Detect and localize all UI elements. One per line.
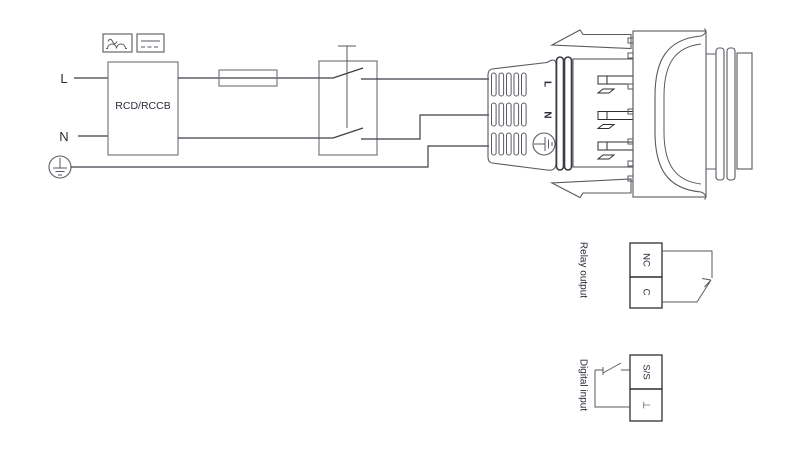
arrow-left-top-icon xyxy=(552,30,631,49)
earth-wire xyxy=(71,146,489,167)
fuse xyxy=(178,70,319,138)
terminal-nc-label: NC xyxy=(641,253,652,267)
pump-wiring-diagram: L N RCD/RCCB xyxy=(0,0,800,465)
mains-supply: L N xyxy=(49,71,489,178)
slot xyxy=(492,103,497,126)
rcd-rccb-block: RCD/RCCB xyxy=(103,34,178,155)
terminal-ss-label: S/S xyxy=(641,364,652,379)
pin-bar xyxy=(598,76,633,84)
slot xyxy=(507,133,512,155)
pump-receptacle xyxy=(628,29,752,200)
slot xyxy=(514,103,519,126)
live-label: L xyxy=(60,71,67,86)
switch-box xyxy=(319,61,377,155)
plug-neutral-label: N xyxy=(542,111,553,118)
pulsating-current-humps xyxy=(106,44,127,49)
wiring-diagram-canvas: L N RCD/RCCB xyxy=(0,0,800,465)
slot xyxy=(492,73,497,96)
smooth-dc-icon xyxy=(137,34,164,52)
slot xyxy=(492,133,497,155)
neck-lines xyxy=(706,54,716,169)
slot xyxy=(514,73,519,96)
neutral-wire-to-plug xyxy=(377,115,489,139)
protective-earth-icon xyxy=(49,156,71,178)
pin-earth xyxy=(598,142,633,159)
plug-earth-glyph xyxy=(534,137,552,151)
collar-ring-1 xyxy=(557,57,564,170)
slot xyxy=(522,103,527,126)
earth-glyph xyxy=(53,158,67,175)
wires-to-plug xyxy=(377,79,489,139)
slot xyxy=(499,73,504,96)
neutral-label: N xyxy=(59,129,68,144)
switch-contact-neutral xyxy=(319,128,377,139)
retaining-clip xyxy=(655,36,701,192)
plug-earth-icon xyxy=(533,133,555,155)
retaining-clip-detail xyxy=(664,29,706,200)
pin-latch xyxy=(598,155,614,159)
connector-housing xyxy=(573,59,633,167)
relay-contact-arm xyxy=(662,279,711,303)
slot xyxy=(514,133,519,155)
pulsating-current-icon xyxy=(103,34,132,52)
receptacle-block xyxy=(633,31,706,197)
pin-latch xyxy=(598,125,614,129)
slot xyxy=(522,133,527,155)
slot xyxy=(507,103,512,126)
collar-ring-2 xyxy=(565,57,572,170)
slot xyxy=(522,73,527,96)
slot xyxy=(499,133,504,155)
switch-contact-live xyxy=(319,68,377,79)
plug-live-label: L xyxy=(542,81,553,87)
digital-input-title: Digital input xyxy=(578,359,589,411)
end-cap xyxy=(737,53,752,169)
slot xyxy=(507,73,512,96)
power-plug: L N xyxy=(488,57,572,170)
ring-1 xyxy=(716,48,724,180)
terminal-c-label: C xyxy=(641,289,652,296)
digital-input-block: Digital input S/S ⊥ xyxy=(578,355,663,421)
plug-connector-body xyxy=(573,59,633,167)
terminal-ground-label: ⊥ xyxy=(641,401,652,409)
grip-slots xyxy=(492,73,527,155)
ring-2 xyxy=(727,48,735,180)
relay-nc-wire xyxy=(662,251,712,278)
isolator-switch xyxy=(319,46,377,155)
relay-output-block: Relay output NC C xyxy=(578,242,713,308)
arrow-left-bottom-icon xyxy=(552,179,631,198)
relay-output-title: Relay output xyxy=(578,242,589,298)
digital-input-switch xyxy=(595,363,630,407)
slot xyxy=(499,103,504,126)
pin-latch xyxy=(598,89,614,93)
rcd-label: RCD/RCCB xyxy=(115,100,170,112)
pulsating-current-tilde xyxy=(108,39,117,44)
